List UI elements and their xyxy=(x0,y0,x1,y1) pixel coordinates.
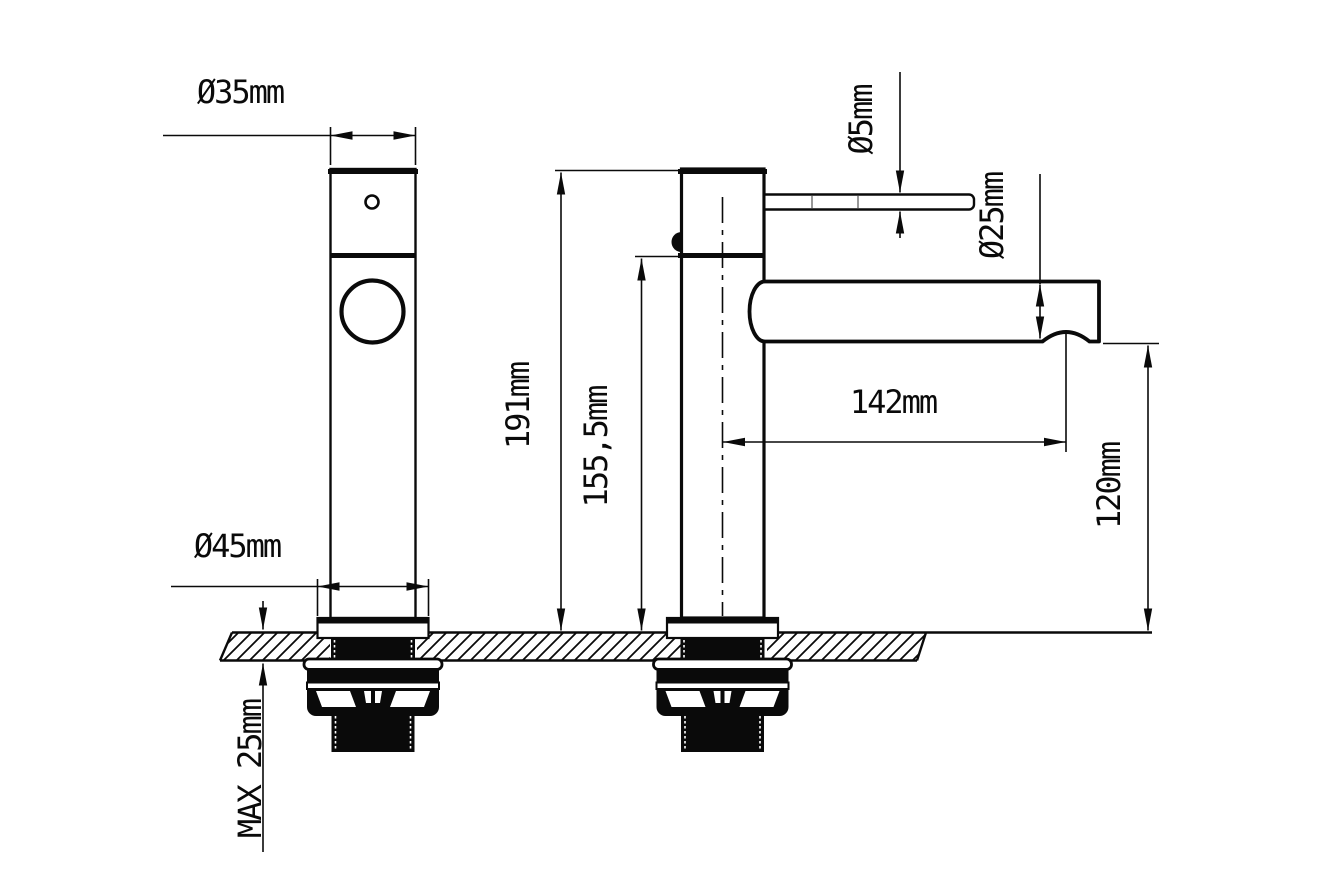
dim-label-flange-diameter: Ø45mm xyxy=(194,527,281,565)
dim-outlet-height: 120mm xyxy=(1090,344,1159,631)
dim-label-body-diameter: Ø35mm xyxy=(197,73,284,111)
side-body-trim-detail xyxy=(672,232,682,252)
dim-label-deck-thickness: MAX 25mm xyxy=(231,699,269,838)
mounting-hardware-side-view xyxy=(654,618,792,752)
front-lever-rod-end xyxy=(366,196,379,209)
dim-label-spout-reach: 142mm xyxy=(850,383,937,421)
drawing-canvas: Ø35mm Ø45mm MAX 25mm 191mm 155,5mm xyxy=(0,0,1325,875)
dim-label-spout-diameter: Ø25mm xyxy=(973,172,1011,259)
dim-label-overall-height: 191mm xyxy=(499,362,537,449)
dim-label-lever-rod-diameter: Ø5mm xyxy=(842,85,880,155)
dim-body-diameter: Ø35mm xyxy=(163,73,416,165)
front-spout-end xyxy=(342,281,404,343)
dimensions: Ø35mm Ø45mm MAX 25mm 191mm 155,5mm xyxy=(163,72,1159,852)
side-lever-handle xyxy=(766,195,975,210)
front-body xyxy=(331,169,416,618)
dim-lever-rod-diameter: Ø5mm xyxy=(842,72,900,238)
faucet-dimension-drawing: Ø35mm Ø45mm MAX 25mm 191mm 155,5mm xyxy=(0,0,1325,875)
side-spout xyxy=(749,282,1099,342)
deck-hatch-right xyxy=(767,634,926,660)
dim-spout-reach: 142mm xyxy=(723,334,1066,452)
dim-spout-joint-height: 155,5mm xyxy=(577,257,678,631)
faucet-front-view xyxy=(328,169,418,618)
deck-hatch-middle xyxy=(417,634,683,660)
mounting-hardware-front-view xyxy=(304,618,442,752)
dim-label-outlet-height: 120mm xyxy=(1090,442,1128,529)
deck-hatch-left xyxy=(220,634,330,660)
dim-label-spout-joint-height: 155,5mm xyxy=(577,386,615,508)
